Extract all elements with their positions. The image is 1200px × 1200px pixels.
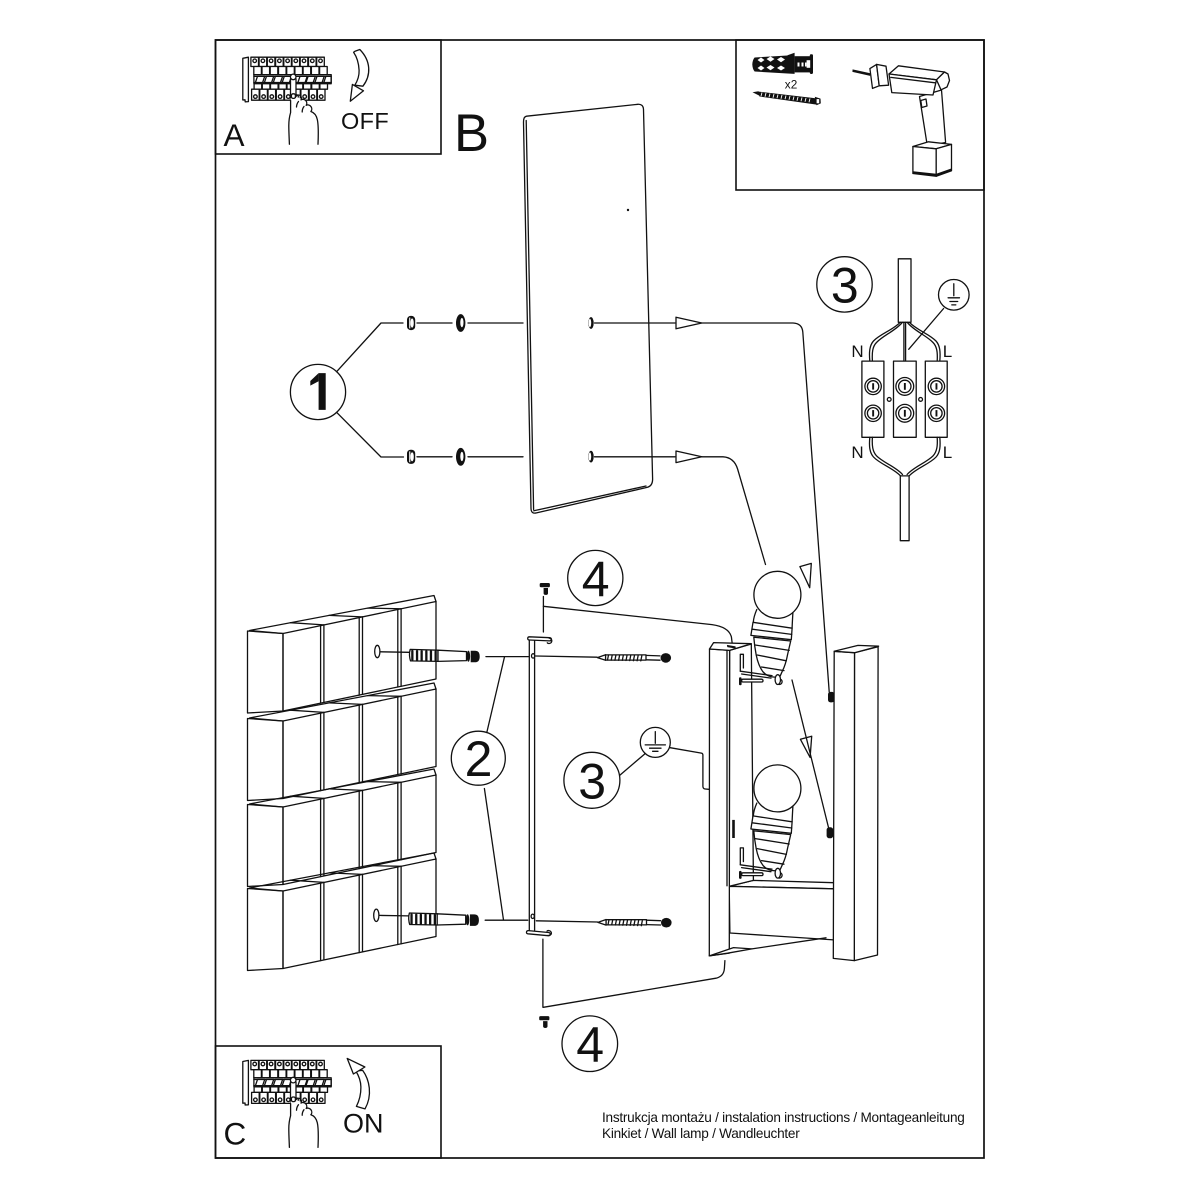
svg-text:N: N — [851, 342, 863, 361]
svg-text:Instrukcja montażu / instalati: Instrukcja montażu / instalation instruc… — [602, 1110, 965, 1125]
svg-text:L: L — [943, 443, 952, 462]
svg-text:2: 2 — [465, 731, 493, 787]
svg-text:4: 4 — [576, 1017, 604, 1073]
svg-text:ON: ON — [343, 1109, 384, 1139]
svg-text:x2: x2 — [785, 77, 797, 91]
svg-text:3: 3 — [578, 754, 606, 810]
svg-text:B: B — [454, 104, 489, 163]
svg-text:A: A — [224, 117, 245, 153]
svg-text:N: N — [851, 443, 863, 462]
svg-text:OFF: OFF — [341, 108, 389, 134]
svg-text:4: 4 — [582, 551, 610, 607]
svg-text:C: C — [224, 1116, 247, 1152]
svg-text:Kinkiet / Wall lamp / Wandleuc: Kinkiet / Wall lamp / Wandleuchter — [602, 1126, 800, 1141]
svg-text:L: L — [943, 342, 952, 361]
svg-text:3: 3 — [831, 258, 859, 314]
